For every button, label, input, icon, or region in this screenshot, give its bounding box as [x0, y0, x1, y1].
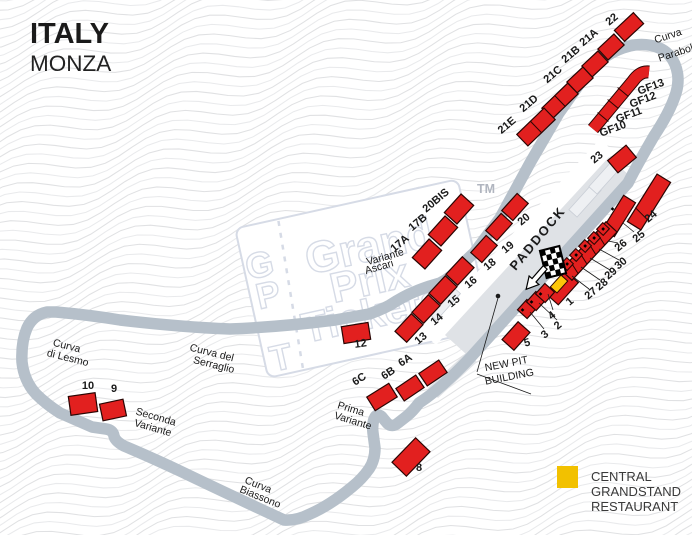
svg-text:MONZA: MONZA: [30, 51, 111, 76]
svg-text:8: 8: [416, 462, 422, 474]
svg-text:RESTAURANT: RESTAURANT: [591, 499, 678, 514]
svg-text:CENTRAL: CENTRAL: [591, 469, 652, 484]
svg-text:ITALY: ITALY: [30, 18, 109, 50]
svg-text:12: 12: [354, 337, 368, 351]
svg-text:GRANDSTAND: GRANDSTAND: [591, 484, 681, 499]
svg-text:9: 9: [111, 383, 117, 395]
svg-text:10: 10: [82, 380, 94, 392]
svg-text:TM: TM: [477, 182, 495, 196]
